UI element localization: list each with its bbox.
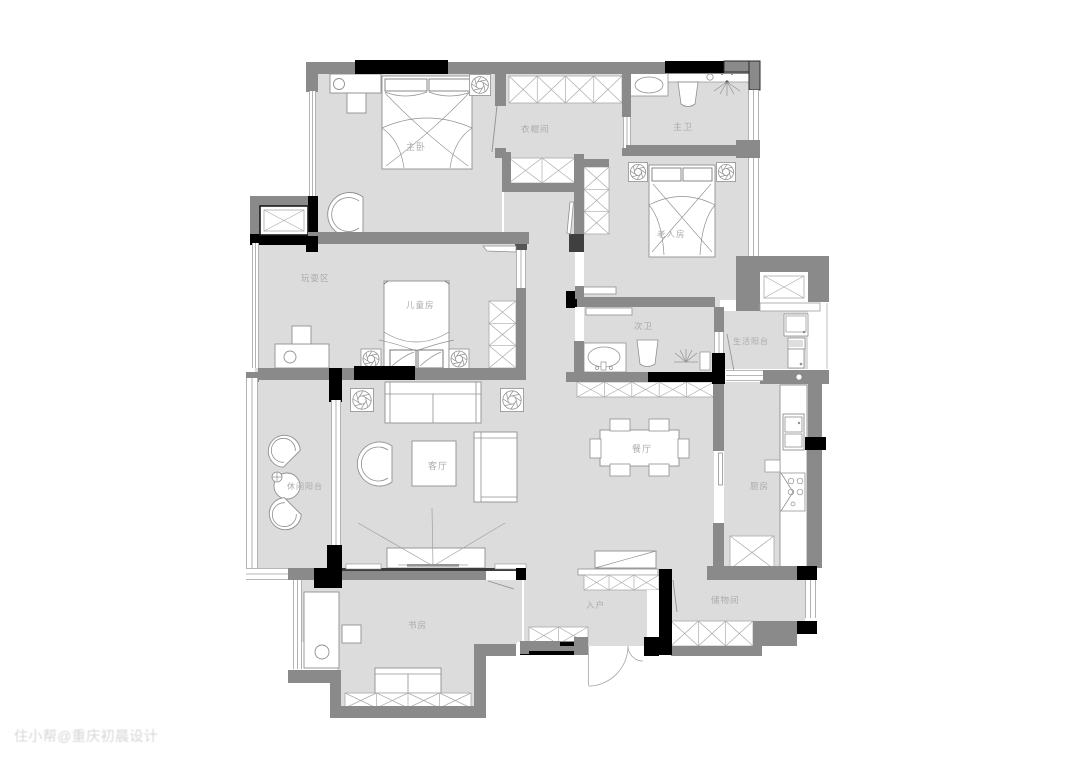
svg-text:餐厅: 餐厅 xyxy=(632,443,652,454)
svg-text:休闲阳台: 休闲阳台 xyxy=(287,481,323,491)
svg-text:客厅: 客厅 xyxy=(428,460,448,471)
svg-text:主卧: 主卧 xyxy=(406,141,426,152)
svg-text:次卫: 次卫 xyxy=(634,321,653,331)
svg-text:住小帮@重庆初晨设计: 住小帮@重庆初晨设计 xyxy=(14,728,158,744)
svg-text:储物间: 储物间 xyxy=(711,595,740,605)
svg-text:厨房: 厨房 xyxy=(750,481,769,491)
svg-text:衣帽间: 衣帽间 xyxy=(521,124,550,134)
svg-text:玩耍区: 玩耍区 xyxy=(301,273,330,283)
svg-text:书房: 书房 xyxy=(408,620,427,630)
svg-text:生活阳台: 生活阳台 xyxy=(733,336,769,346)
svg-text:主卫: 主卫 xyxy=(673,121,693,132)
svg-text:儿童房: 儿童房 xyxy=(406,300,435,310)
svg-text:入户: 入户 xyxy=(586,600,605,610)
svg-text:老人房: 老人房 xyxy=(657,229,686,239)
